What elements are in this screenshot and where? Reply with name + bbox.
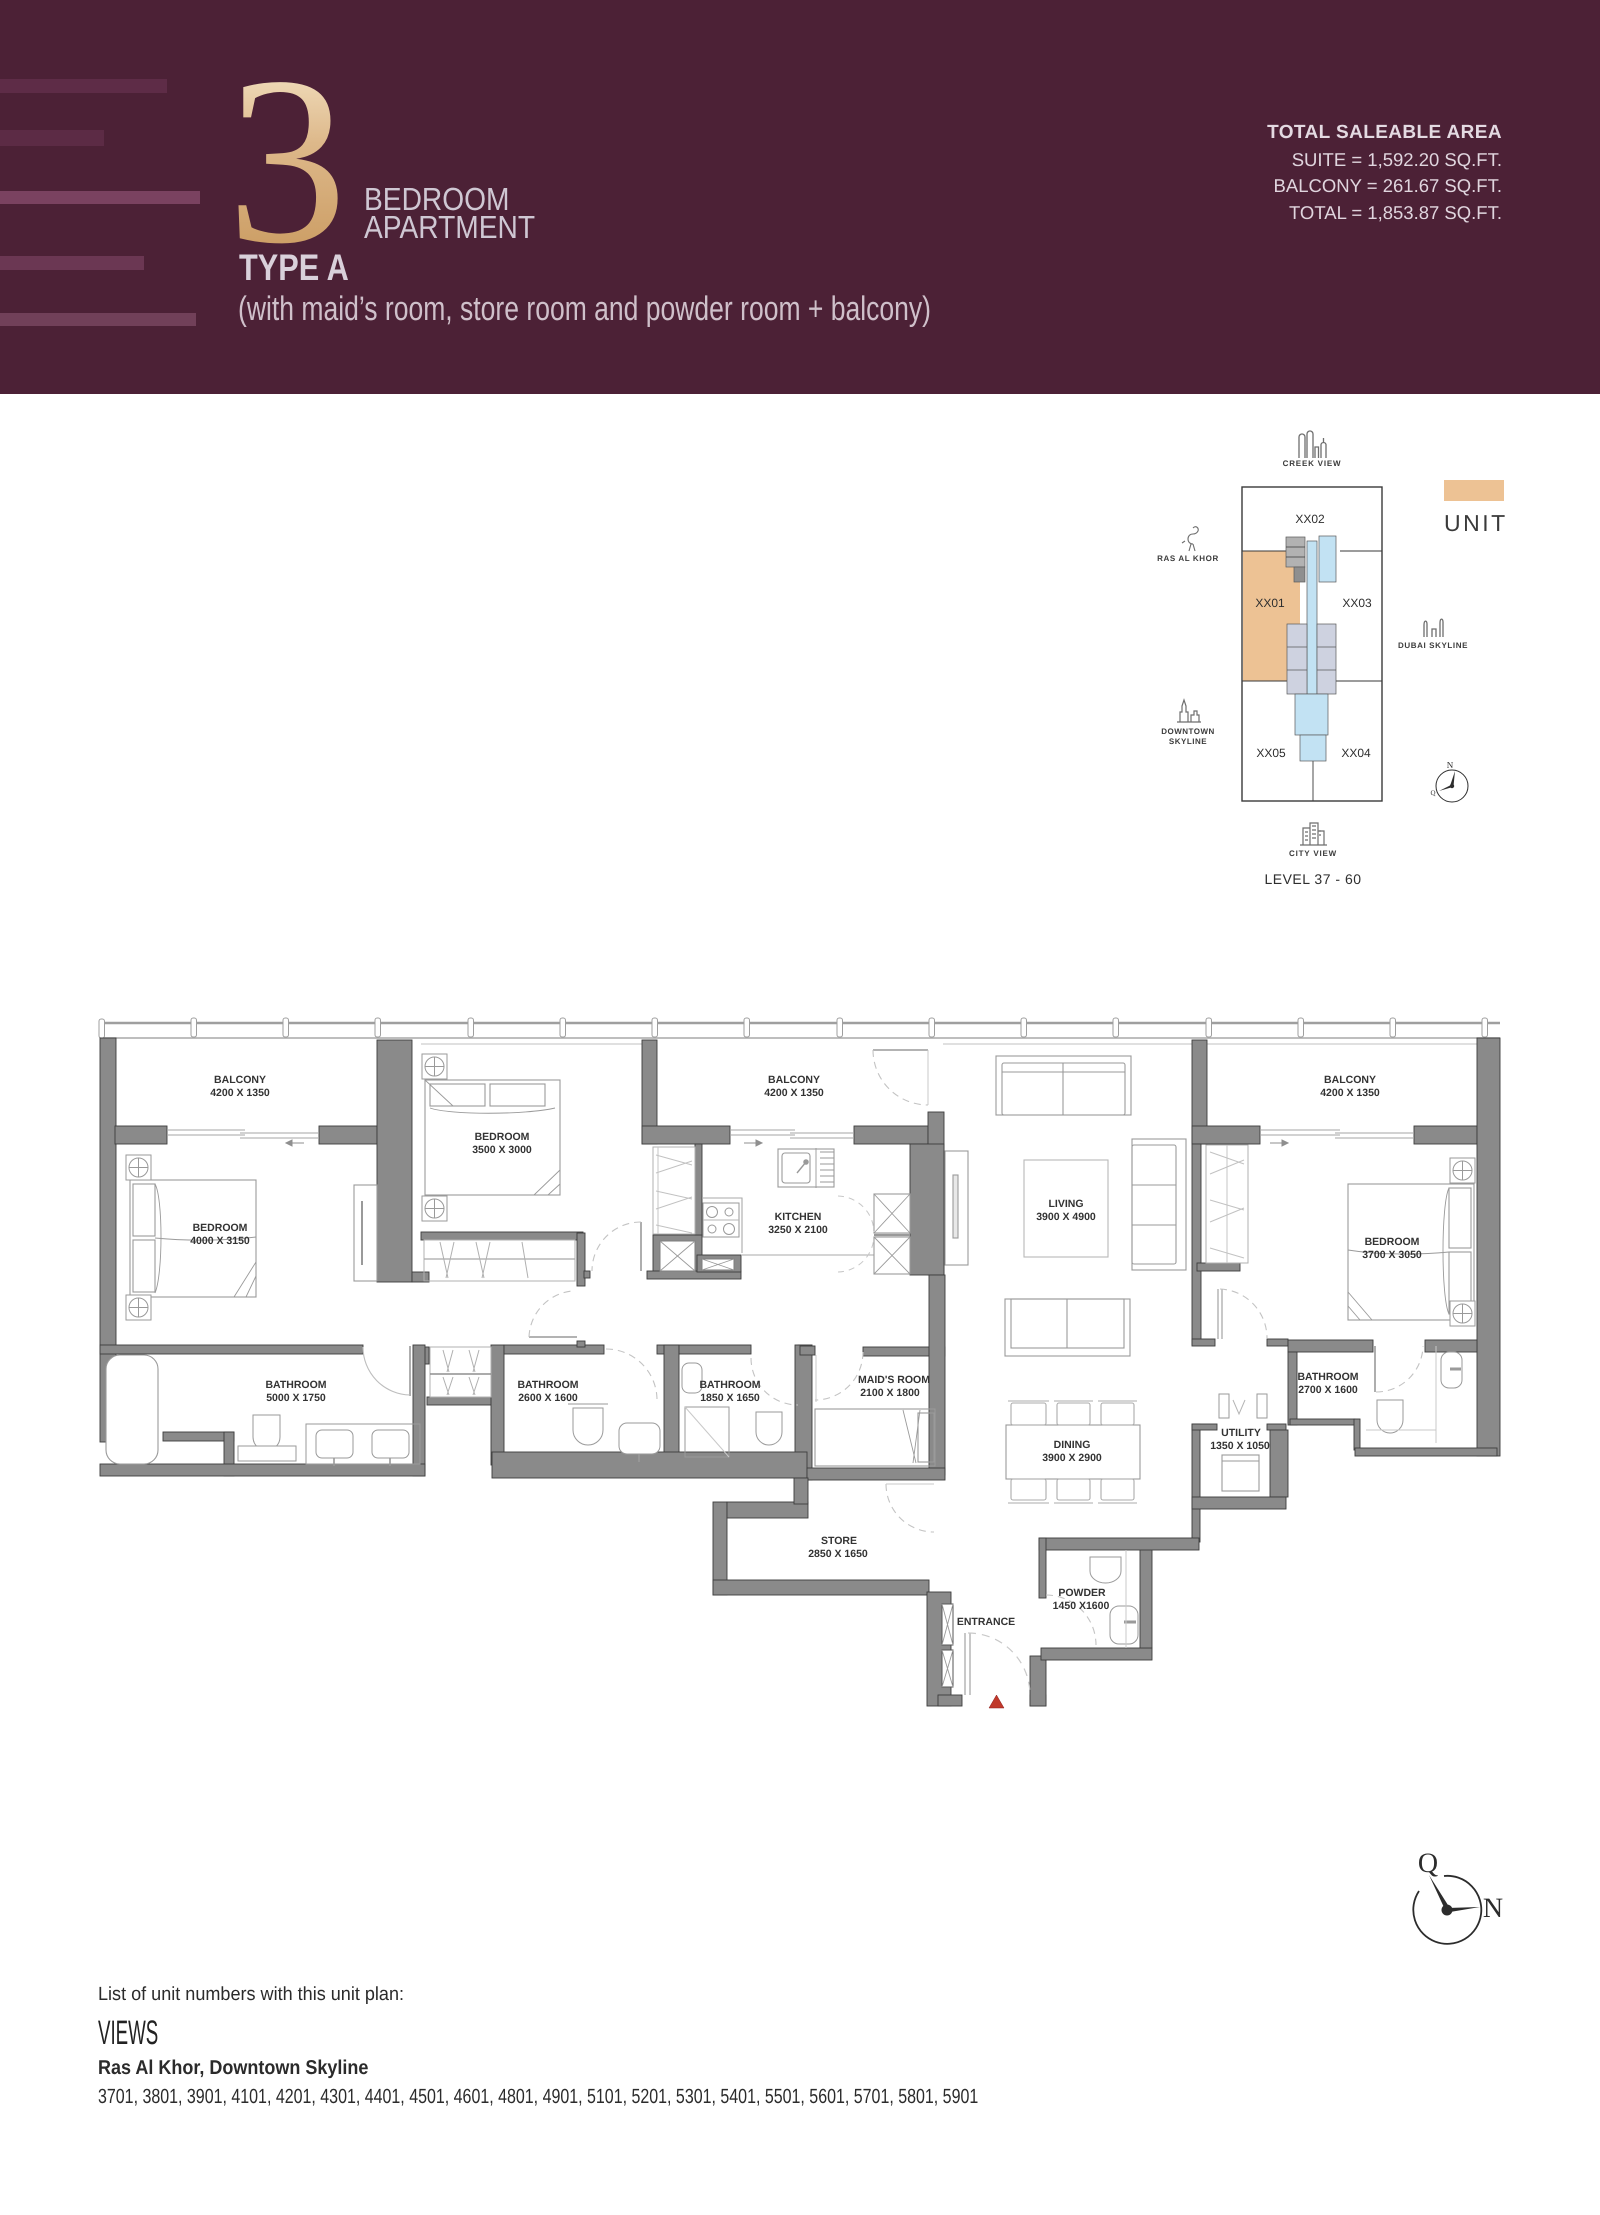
svg-text:1350 X 1050: 1350 X 1050 xyxy=(1210,1440,1270,1452)
svg-text:BALCONY: BALCONY xyxy=(1324,1074,1376,1086)
svg-text:BEDROOM: BEDROOM xyxy=(193,1222,248,1234)
svg-text:LIVING: LIVING xyxy=(1048,1198,1083,1210)
svg-text:BATHROOM: BATHROOM xyxy=(699,1379,760,1391)
svg-text:SKYLINE: SKYLINE xyxy=(1169,737,1207,746)
svg-text:2600 X 1600: 2600 X 1600 xyxy=(518,1392,578,1404)
svg-text:CREEK VIEW: CREEK VIEW xyxy=(1283,459,1342,468)
svg-text:3900 X 2900: 3900 X 2900 xyxy=(1042,1452,1102,1464)
svg-text:CITY VIEW: CITY VIEW xyxy=(1289,849,1337,858)
svg-text:KITCHEN: KITCHEN xyxy=(775,1211,822,1223)
svg-text:3500 X 3000: 3500 X 3000 xyxy=(472,1144,532,1156)
svg-text:3700 X 3050: 3700 X 3050 xyxy=(1362,1249,1422,1261)
svg-text:3900 X 4900: 3900 X 4900 xyxy=(1036,1211,1096,1223)
svg-text:1850 X 1650: 1850 X 1650 xyxy=(700,1392,760,1404)
svg-text:1450 X1600: 1450 X1600 xyxy=(1053,1600,1110,1612)
svg-text:5000 X 1750: 5000 X 1750 xyxy=(266,1392,326,1404)
svg-text:4200 X 1350: 4200 X 1350 xyxy=(1320,1087,1380,1099)
svg-text:N: N xyxy=(1447,760,1454,770)
svg-text:2850 X 1650: 2850 X 1650 xyxy=(808,1548,868,1560)
svg-text:LEVEL 37 - 60: LEVEL 37 - 60 xyxy=(1264,871,1361,887)
svg-text:BALCONY: BALCONY xyxy=(768,1074,820,1086)
svg-text:RAS AL KHOR: RAS AL KHOR xyxy=(1157,554,1219,563)
svg-text:2100 X 1800: 2100 X 1800 xyxy=(860,1387,920,1399)
svg-text:Q: Q xyxy=(1418,1848,1438,1879)
svg-text:2700 X 1600: 2700 X 1600 xyxy=(1298,1384,1358,1396)
svg-text:ENTRANCE: ENTRANCE xyxy=(957,1616,1015,1628)
svg-text:STORE: STORE xyxy=(821,1535,857,1547)
svg-text:DINING: DINING xyxy=(1054,1439,1091,1451)
svg-text:3250 X 2100: 3250 X 2100 xyxy=(768,1224,828,1236)
svg-text:4200 X 1350: 4200 X 1350 xyxy=(764,1087,824,1099)
svg-text:BEDROOM: BEDROOM xyxy=(1365,1236,1420,1248)
svg-text:XX01: XX01 xyxy=(1255,596,1285,610)
svg-text:BEDROOM: BEDROOM xyxy=(475,1131,530,1143)
svg-text:BATHROOM: BATHROOM xyxy=(265,1379,326,1391)
svg-text:N: N xyxy=(1483,1893,1503,1924)
svg-text:4000 X 3150: 4000 X 3150 xyxy=(190,1235,250,1247)
svg-text:DOWNTOWN: DOWNTOWN xyxy=(1161,727,1215,736)
svg-text:XX04: XX04 xyxy=(1341,746,1371,760)
svg-text:XX02: XX02 xyxy=(1295,512,1325,526)
svg-text:BALCONY: BALCONY xyxy=(214,1074,266,1086)
svg-text:DUBAI SKYLINE: DUBAI SKYLINE xyxy=(1398,641,1468,650)
svg-text:BATHROOM: BATHROOM xyxy=(1297,1371,1358,1383)
svg-text:BATHROOM: BATHROOM xyxy=(517,1379,578,1391)
svg-text:XX03: XX03 xyxy=(1342,596,1372,610)
svg-text:XX05: XX05 xyxy=(1256,746,1286,760)
svg-text:UNIT: UNIT xyxy=(1444,510,1508,536)
svg-text:Q: Q xyxy=(1430,789,1435,797)
svg-text:4200 X 1350: 4200 X 1350 xyxy=(210,1087,270,1099)
svg-text:POWDER: POWDER xyxy=(1058,1587,1106,1599)
svg-text:MAID'S ROOM: MAID'S ROOM xyxy=(858,1374,930,1386)
svg-text:UTILITY: UTILITY xyxy=(1221,1427,1261,1439)
